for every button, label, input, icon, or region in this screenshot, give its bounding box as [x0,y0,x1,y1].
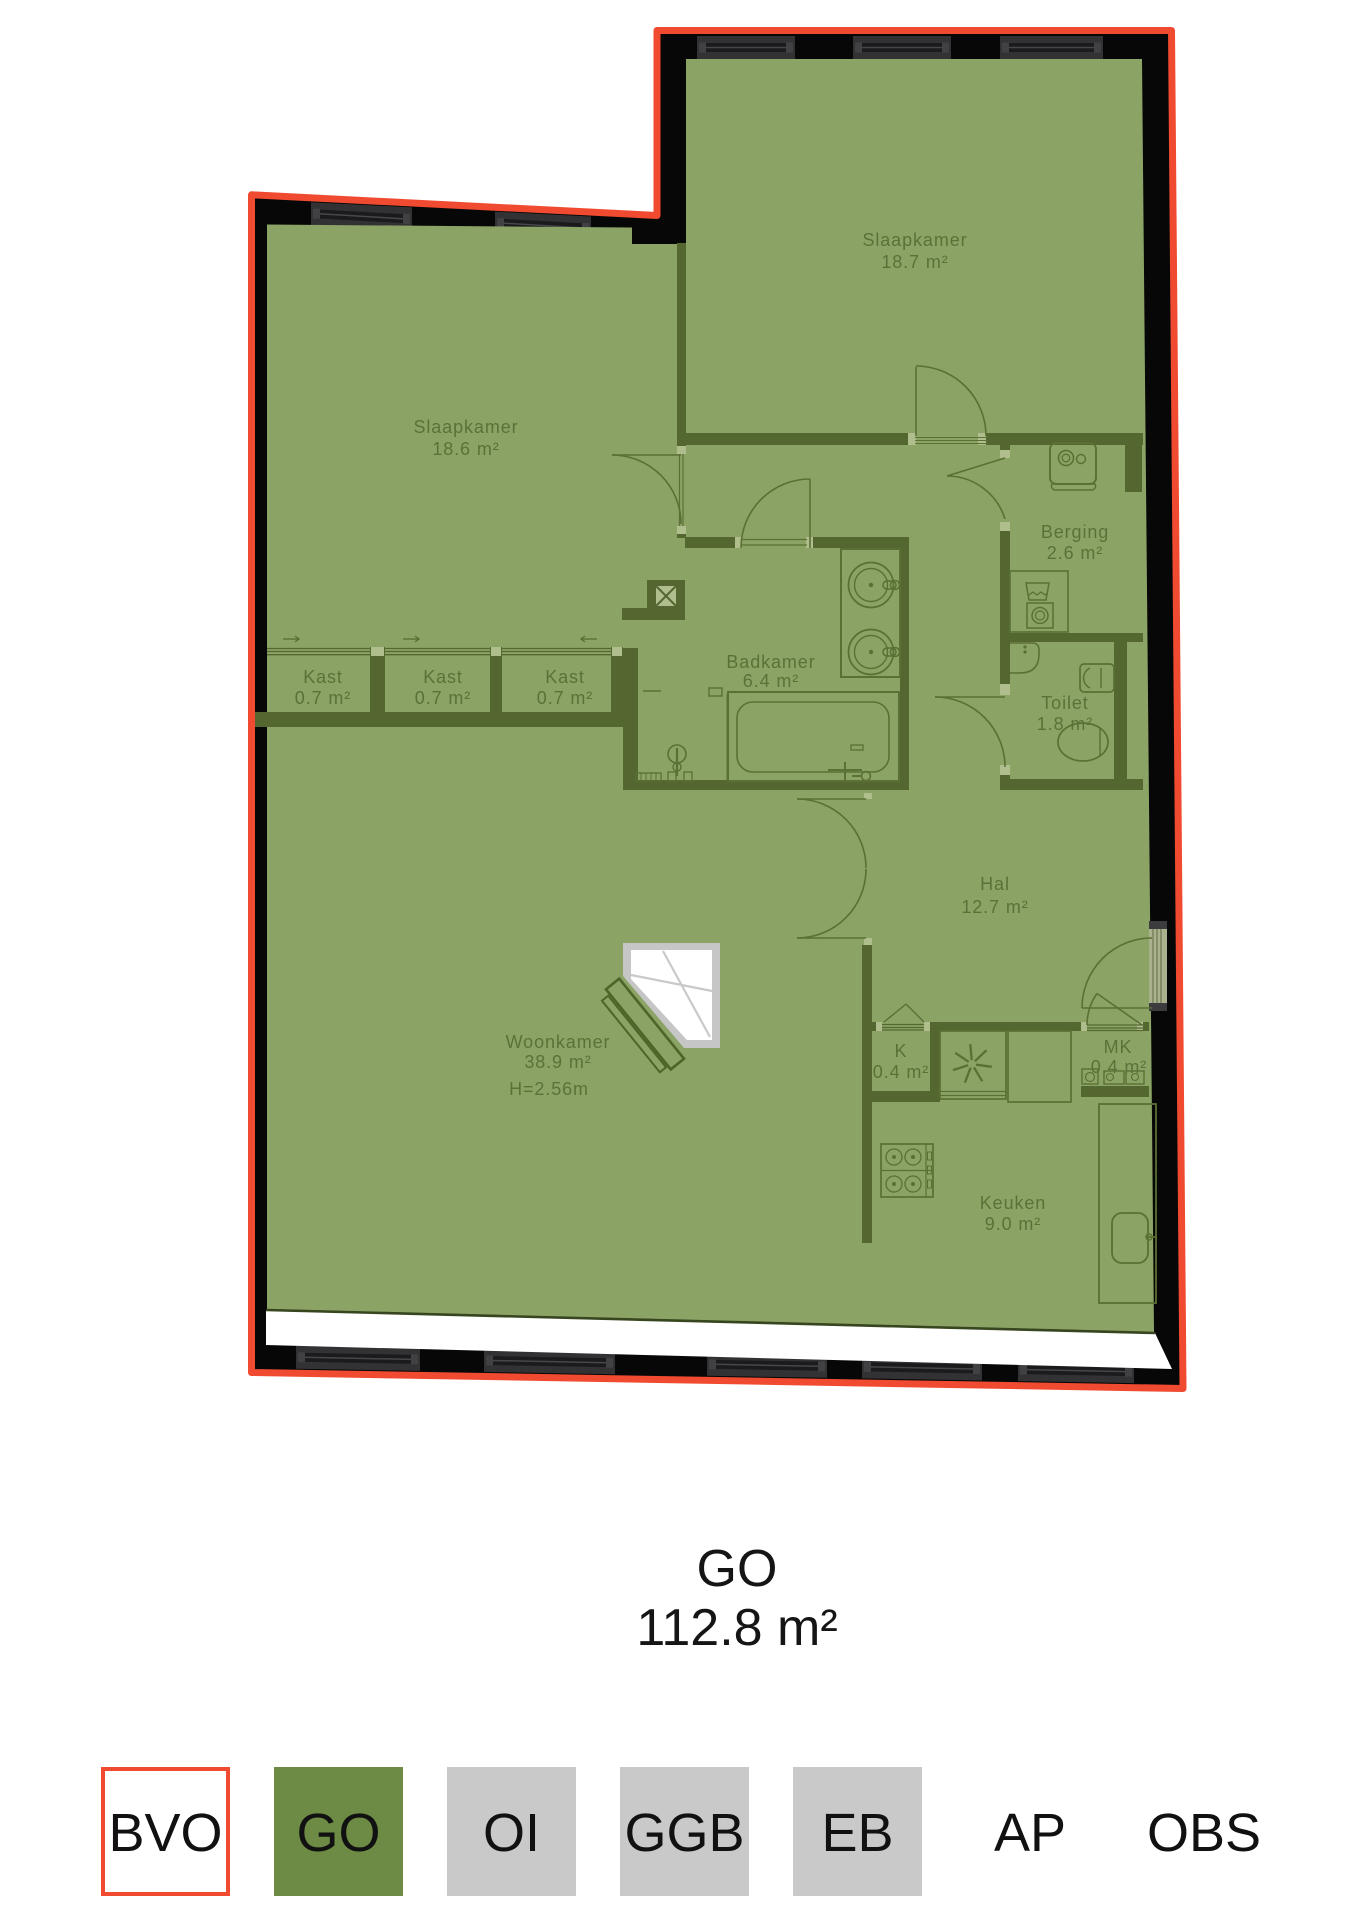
svg-text:Berging: Berging [1041,522,1109,542]
svg-text:AP: AP [994,1803,1066,1863]
svg-text:Slaapkamer: Slaapkamer [413,417,518,437]
svg-text:Slaapkamer: Slaapkamer [862,230,967,250]
svg-text:0.7 m²: 0.7 m² [415,688,471,708]
svg-text:GGB: GGB [624,1803,744,1863]
svg-text:Toilet: Toilet [1041,693,1088,713]
svg-text:0.7 m²: 0.7 m² [295,688,351,708]
svg-text:Kast: Kast [303,667,343,687]
svg-text:Badkamer: Badkamer [726,652,815,672]
svg-text:112.8 m²: 112.8 m² [636,1599,837,1657]
svg-text:GO: GO [697,1540,778,1598]
svg-text:Woonkamer: Woonkamer [506,1032,611,1052]
svg-text:OI: OI [483,1803,540,1863]
svg-text:H=2.56m: H=2.56m [509,1079,589,1099]
svg-text:18.6 m²: 18.6 m² [432,439,499,459]
svg-text:9.0 m²: 9.0 m² [985,1214,1041,1234]
svg-text:MK: MK [1104,1037,1133,1057]
svg-text:6.4 m²: 6.4 m² [743,671,799,691]
svg-text:2.6 m²: 2.6 m² [1047,543,1103,563]
svg-text:EB: EB [821,1803,893,1863]
svg-text:0.4 m²: 0.4 m² [873,1062,929,1082]
svg-text:GO: GO [296,1803,380,1863]
svg-text:K: K [895,1041,908,1061]
svg-text:1.8 m²: 1.8 m² [1037,714,1093,734]
svg-text:BVO: BVO [108,1803,222,1863]
svg-text:0.7 m²: 0.7 m² [537,688,593,708]
svg-text:Kast: Kast [423,667,463,687]
svg-text:12.7 m²: 12.7 m² [961,897,1028,917]
svg-text:OBS: OBS [1147,1803,1261,1863]
svg-text:Kast: Kast [545,667,585,687]
svg-text:18.7 m²: 18.7 m² [881,252,948,272]
svg-text:Keuken: Keuken [980,1193,1046,1213]
svg-text:0.4 m²: 0.4 m² [1091,1057,1147,1077]
svg-text:38.9 m²: 38.9 m² [524,1052,591,1072]
svg-text:Hal: Hal [980,874,1010,894]
